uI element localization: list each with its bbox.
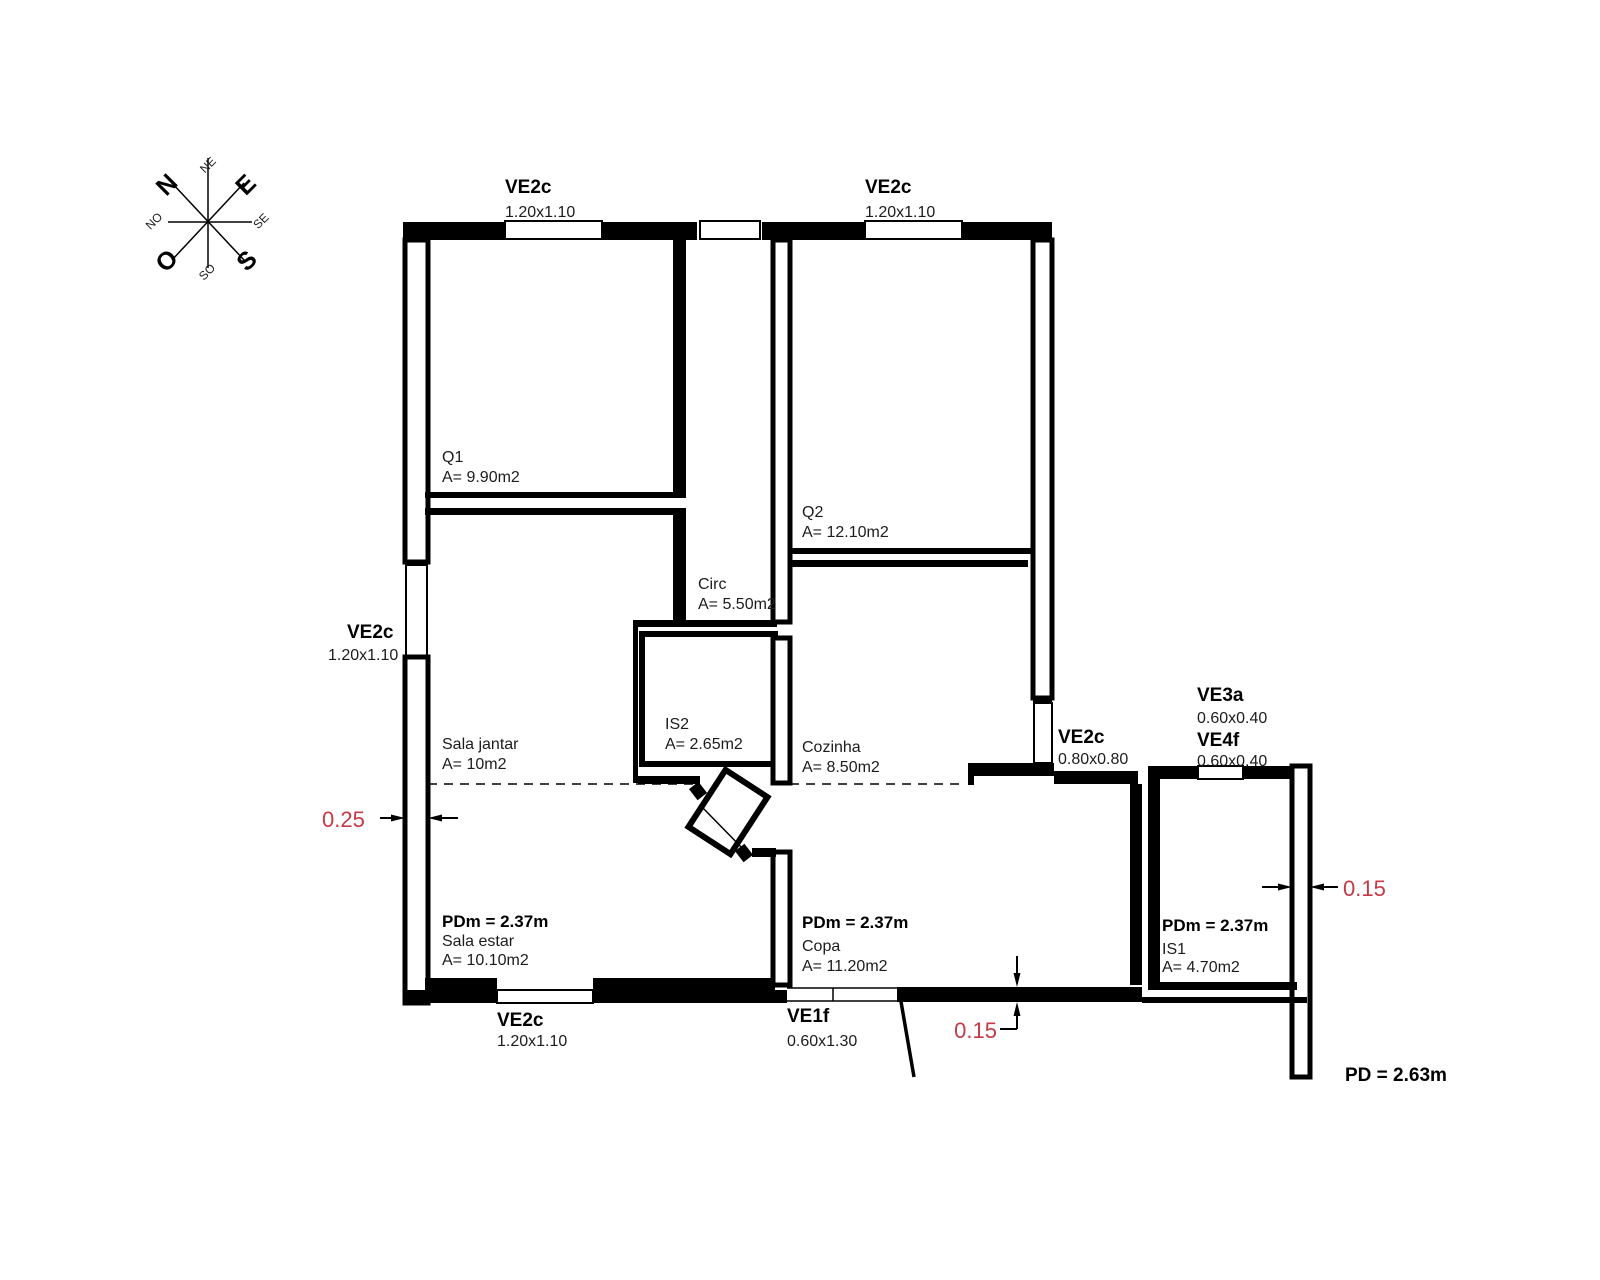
wall-q1-bottom (425, 492, 686, 498)
room-circ-area: A= 5.50m2 (698, 596, 776, 613)
room-q1-name: Q1 (442, 449, 463, 466)
label-ve2c-top2-size: 1.20x1.10 (865, 204, 935, 221)
wall-left-upper (405, 240, 428, 562)
room-is2-area: A= 2.65m2 (665, 736, 743, 753)
room-cozinha-area: A= 8.50m2 (802, 759, 880, 776)
window-ve2c-left (406, 565, 427, 657)
room-salaestar-pdm: PDm = 2.37m (442, 912, 548, 931)
compass-o: O (150, 244, 184, 278)
label-ve1f-size: 0.60x1.30 (787, 1033, 857, 1050)
dim-wall-right-value: 0.15 (1343, 876, 1386, 901)
interior-door (689, 770, 776, 862)
wall-is1-left (1148, 779, 1160, 990)
label-ve4f-code: VE4f (1197, 730, 1240, 751)
wall-top-2 (602, 222, 697, 240)
window-circ-top (700, 221, 760, 239)
room-copa-area: A= 11.20m2 (802, 958, 888, 975)
room-is1-area: A= 4.70m2 (1162, 959, 1240, 976)
wall-bottom-inner-2 (593, 978, 775, 990)
label-ve2c-top1-code: VE2c (505, 177, 552, 198)
room-salaestar-name: Sala estar (442, 933, 515, 950)
wall-copa-right (1130, 784, 1142, 985)
room-copa-name: Copa (802, 938, 840, 955)
wall-is1-bottom (1148, 982, 1297, 990)
label-ve2c-bottom-size: 1.20x1.10 (497, 1033, 567, 1050)
compass-s: S (231, 245, 263, 277)
wall-spine-lower (773, 852, 790, 985)
label-ve4f-size: 0.60x0.40 (1197, 753, 1267, 770)
wall-salajantar-top (425, 508, 686, 515)
compass-e: E (230, 169, 262, 201)
compass-ne: NE (197, 154, 219, 176)
label-ve3a-code: VE3a (1197, 685, 1244, 706)
wall-annex-cap (968, 763, 974, 785)
wall-circ-left-lower (673, 515, 686, 627)
room-salaestar-area: A= 10.10m2 (442, 952, 529, 969)
wall-circ-bottom (633, 620, 777, 627)
window-ve2c-kitchen (1034, 703, 1052, 763)
label-ve2c-left-code: VE2c (347, 622, 394, 643)
wall-top-3 (762, 222, 865, 240)
room-copa-pdm: PDm = 2.37m (802, 913, 908, 932)
wall-bottom-under-is1 (1142, 997, 1307, 1003)
label-ve3a-size: 0.60x0.40 (1197, 710, 1267, 727)
room-circ-name: Circ (698, 576, 726, 593)
wall-door-connector (752, 848, 776, 857)
wall-cozinha-top (790, 560, 1028, 567)
label-ve2c-top2-code: VE2c (865, 177, 912, 198)
wall-bottom-outer-1 (403, 990, 497, 1003)
label-ve2c-bottom-code: VE2c (497, 1010, 544, 1031)
room-is2-name: IS2 (665, 716, 689, 733)
wall-top-4 (962, 222, 1052, 240)
room-is1-pdm: PDm = 2.37m (1162, 916, 1268, 935)
wall-spine-middle (773, 638, 790, 783)
wall-bottom-inner-1 (425, 978, 497, 990)
wall-right-outer (1292, 766, 1310, 1077)
wall-q2-bottom (790, 548, 1033, 554)
floor-plan-canvas: N E O S NE SE NO SO (0, 0, 1600, 1280)
room-q2-area: A= 12.10m2 (802, 524, 889, 541)
room-cozinha-name: Cozinha (802, 739, 861, 756)
label-ve2c-kitchen-code: VE2c (1058, 727, 1105, 748)
compass-rose-icon: N E O S NE SE NO SO (143, 154, 272, 283)
wall-bottom-outer-2 (593, 990, 787, 1003)
wall-is1-top-1 (1148, 766, 1198, 779)
wall-below-is2 (638, 776, 700, 784)
pd-total-label: PD = 2.63m (1345, 1065, 1447, 1086)
room-salajantar-name: Sala jantar (442, 736, 519, 753)
door-ve1f-threshold (787, 988, 897, 1001)
compass-n: N (151, 169, 184, 202)
wall-annex-step-2 (1054, 771, 1138, 784)
door-ve1f-swing (899, 990, 914, 1077)
wall-right-q2 (1033, 240, 1052, 698)
wall-spine-upper (773, 240, 790, 622)
label-ve1f-code: VE1f (787, 1006, 830, 1027)
room-q1-area: A= 9.90m2 (442, 469, 520, 486)
dim-wall-bottom-value: 0.15 (954, 1018, 997, 1043)
floor-plan-drawing: N E O S NE SE NO SO (0, 0, 1600, 1280)
dim-wall-left: 0.25 (322, 807, 458, 832)
window-ve2c-bottom (497, 990, 593, 1003)
room-q2-name: Q2 (802, 504, 823, 521)
label-ve2c-kitchen-size: 0.80x0.80 (1058, 751, 1128, 768)
label-ve2c-top1-size: 1.20x1.10 (505, 204, 575, 221)
compass-no: NO (143, 210, 166, 233)
dim-wall-left-value: 0.25 (322, 807, 365, 832)
room-is1-name: IS1 (1162, 941, 1186, 958)
door-leaf (689, 770, 768, 854)
room-salajantar-area: A= 10m2 (442, 756, 507, 773)
window-ve2c-top-1 (505, 221, 602, 239)
wall-left-lower (405, 657, 428, 1003)
wall-top-1 (403, 222, 505, 240)
room-labels: Q1 A= 9.90m2 Q2 A= 12.10m2 Circ A= 5.50m… (442, 449, 1268, 976)
label-ve2c-left-size: 1.20x1.10 (328, 647, 398, 664)
dim-wall-right: 0.15 (1262, 876, 1386, 901)
wall-q1-circ (673, 240, 686, 492)
wall-salajantar-east (633, 627, 638, 783)
wall-annex-step-1 (968, 763, 1054, 776)
compass-so: SO (196, 261, 218, 283)
compass-se: SE (250, 210, 271, 231)
window-ve2c-top-2 (865, 221, 962, 239)
wall-copa-bottom (897, 987, 1142, 1002)
